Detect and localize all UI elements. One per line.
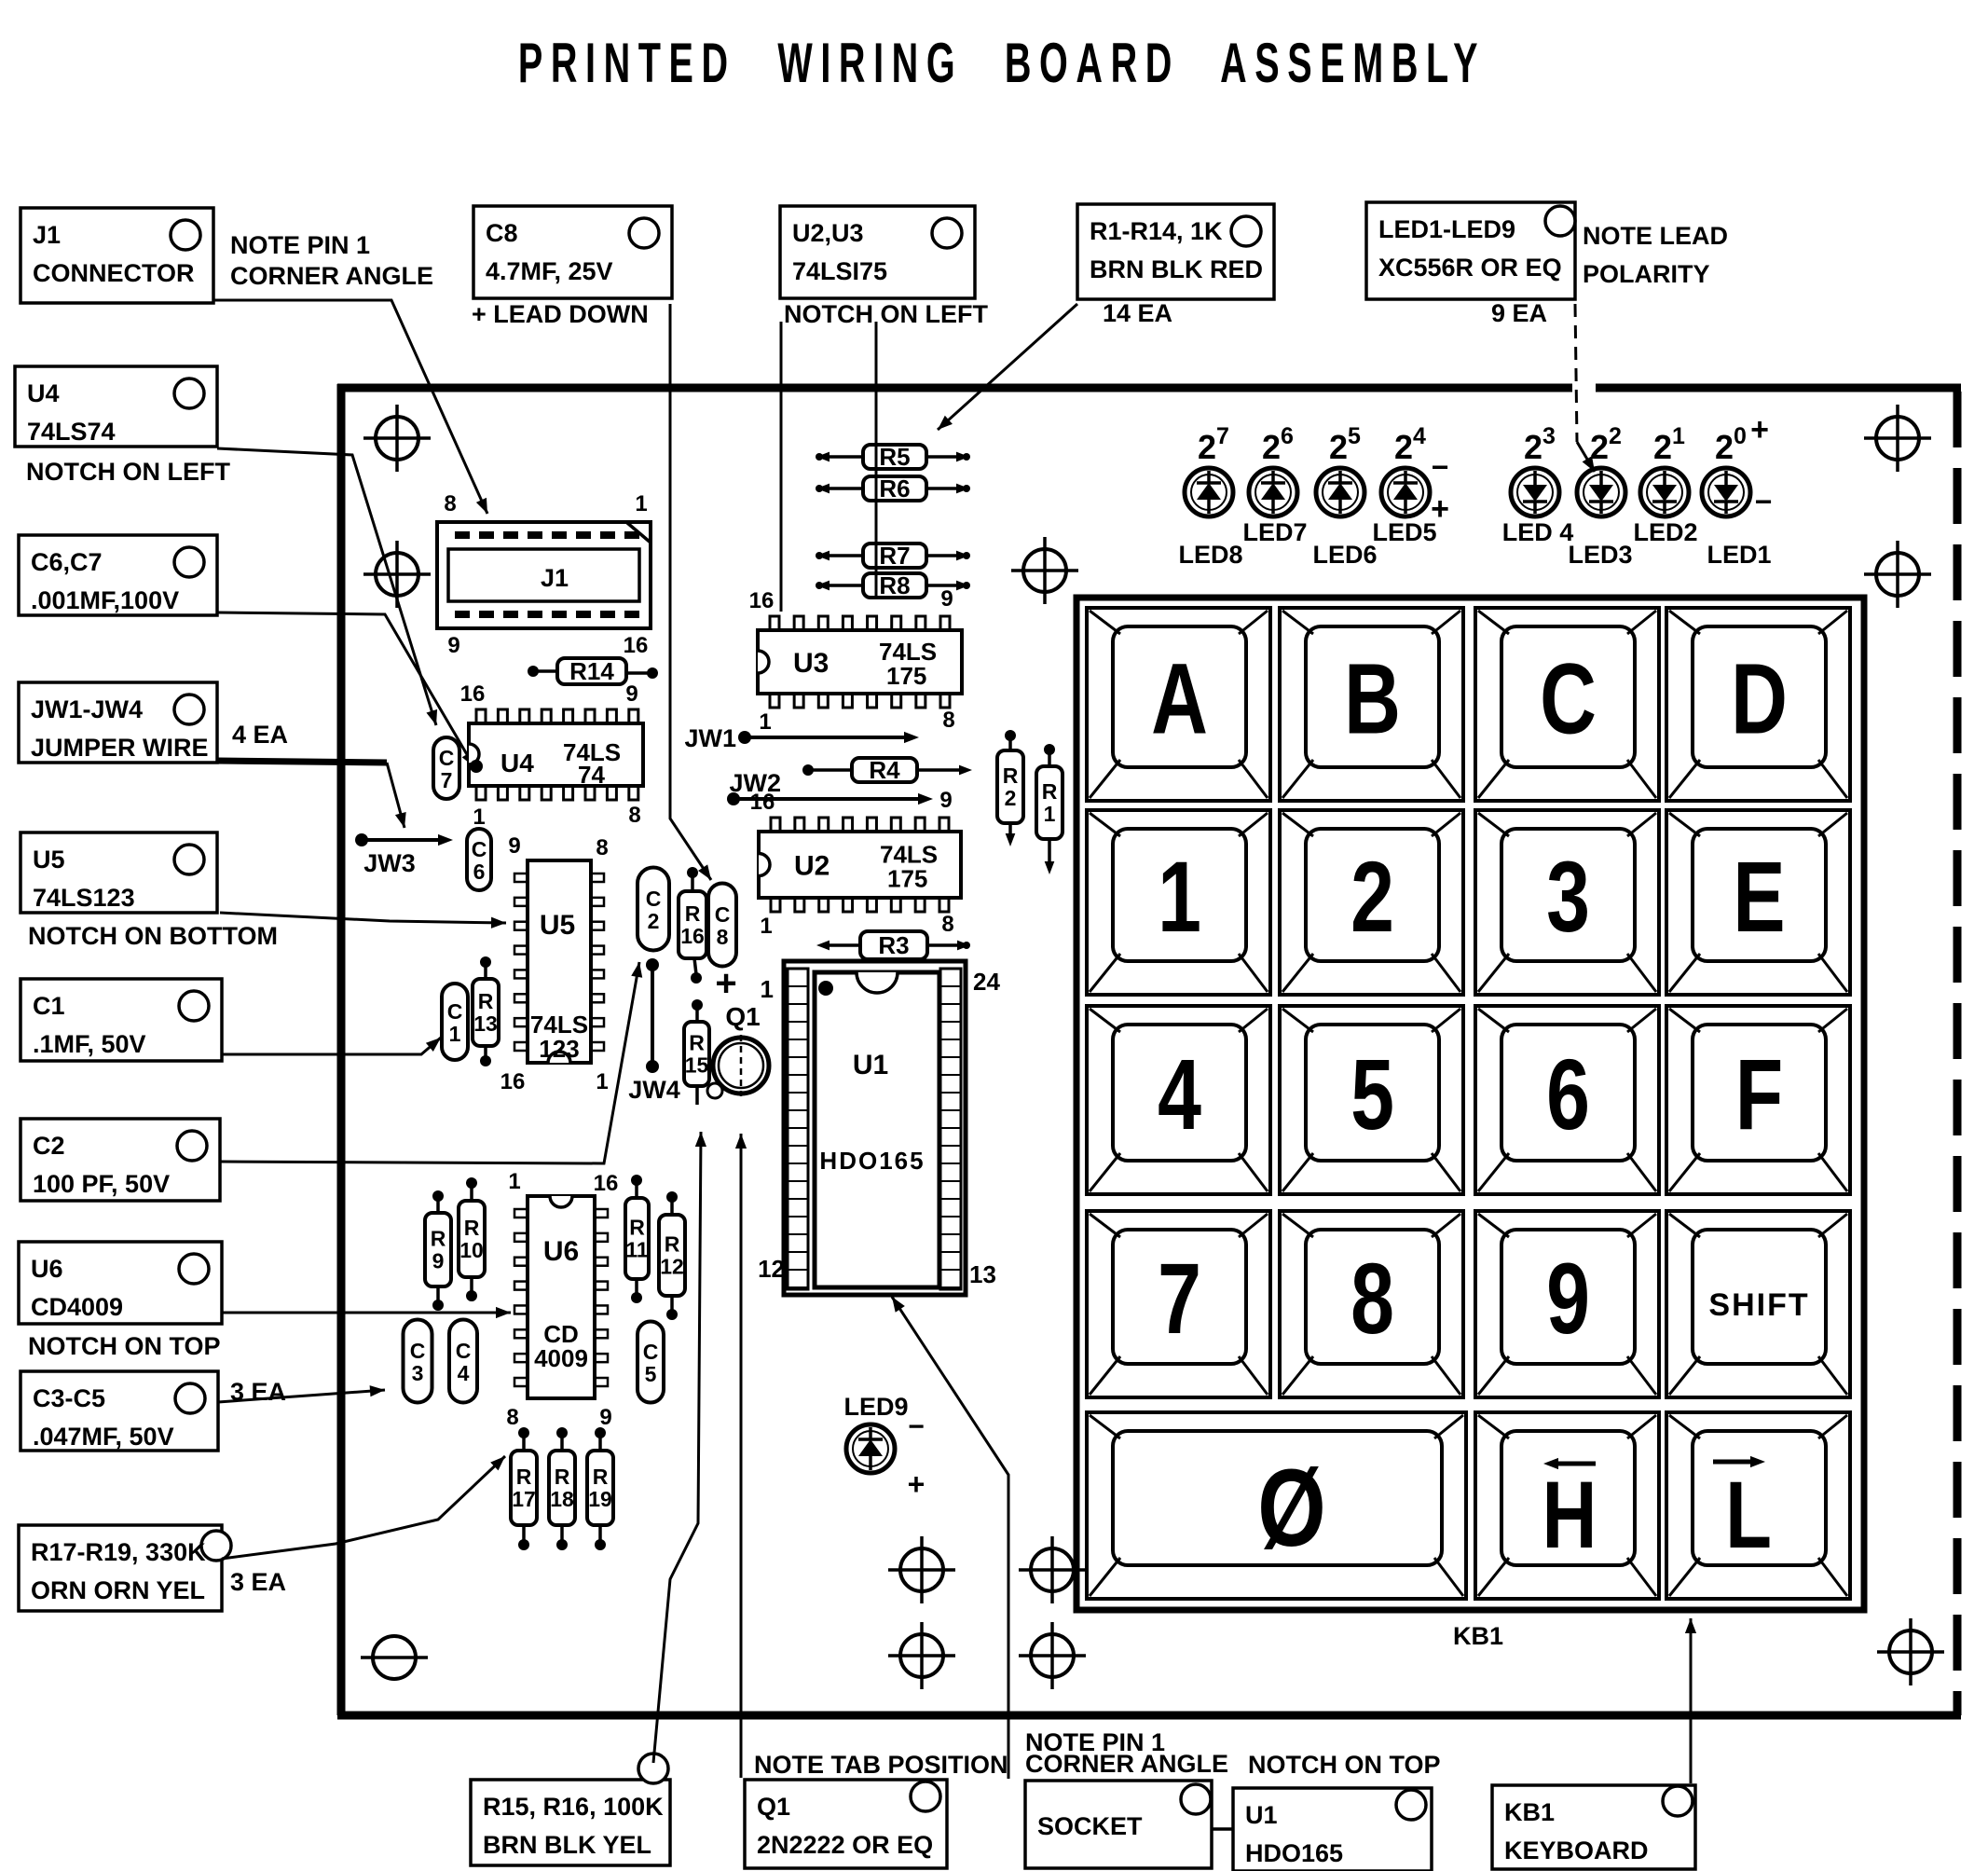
svg-text:1: 1 <box>596 1069 608 1094</box>
svg-text:11: 11 <box>625 1238 649 1262</box>
svg-text:9: 9 <box>599 1405 611 1430</box>
svg-text:16: 16 <box>460 681 486 707</box>
svg-text:1: 1 <box>760 914 772 939</box>
svg-text:.001MF,100V: .001MF,100V <box>31 586 179 614</box>
svg-text:R: R <box>1003 764 1019 788</box>
svg-text:C: C <box>472 837 487 861</box>
svg-text:R14: R14 <box>569 657 614 685</box>
svg-text:19: 19 <box>588 1487 612 1511</box>
svg-text:74LS74: 74LS74 <box>27 418 116 446</box>
svg-text:1: 1 <box>635 491 647 516</box>
svg-text:R8: R8 <box>879 571 910 599</box>
svg-text:17: 17 <box>512 1487 536 1511</box>
svg-text:ORN ORN YEL: ORN ORN YEL <box>31 1576 205 1604</box>
svg-text:74: 74 <box>578 761 605 789</box>
svg-text:16: 16 <box>594 1171 619 1196</box>
svg-text:3: 3 <box>412 1361 424 1385</box>
svg-text:R: R <box>1042 779 1058 804</box>
svg-text:POLARITY: POLARITY <box>1583 260 1710 288</box>
svg-text:16: 16 <box>749 588 775 613</box>
svg-text:R4: R4 <box>869 756 900 784</box>
svg-text:BRN BLK RED: BRN BLK RED <box>1090 255 1263 283</box>
svg-text:4 EA: 4 EA <box>232 721 288 749</box>
svg-text:−: − <box>1755 485 1773 518</box>
svg-text:R15, R16, 100K: R15, R16, 100K <box>483 1793 664 1821</box>
svg-text:.1MF, 50V: .1MF, 50V <box>33 1030 146 1058</box>
svg-text:175: 175 <box>886 662 926 690</box>
svg-text:R5: R5 <box>879 443 910 471</box>
svg-text:U4: U4 <box>27 379 60 407</box>
svg-text:NOTE PIN 1: NOTE PIN 1 <box>230 231 370 259</box>
svg-text:L: L <box>1725 1461 1772 1568</box>
svg-text:C: C <box>1540 641 1597 755</box>
svg-text:+ LEAD DOWN: + LEAD DOWN <box>472 300 649 328</box>
svg-text:3: 3 <box>1546 840 1590 954</box>
svg-text:14 EA: 14 EA <box>1103 299 1172 327</box>
svg-text:7: 7 <box>441 768 453 792</box>
svg-text:8: 8 <box>717 925 729 949</box>
svg-text:12: 12 <box>660 1255 684 1279</box>
svg-text:J1: J1 <box>33 221 61 249</box>
svg-text:R: R <box>689 1031 705 1055</box>
svg-text:.047MF, 50V: .047MF, 50V <box>33 1423 174 1451</box>
svg-text:KEYBOARD: KEYBOARD <box>1504 1837 1649 1864</box>
svg-text:LED2: LED2 <box>1633 518 1697 546</box>
svg-text:16: 16 <box>680 924 705 948</box>
svg-text:C: C <box>439 746 455 770</box>
svg-text:R: R <box>629 1216 645 1240</box>
svg-text:R: R <box>478 989 494 1013</box>
svg-text:6: 6 <box>1546 1038 1590 1151</box>
svg-text:LED1: LED1 <box>1707 541 1771 569</box>
svg-text:9: 9 <box>432 1249 445 1273</box>
svg-text:1: 1 <box>449 1022 461 1046</box>
svg-text:8: 8 <box>628 803 640 828</box>
svg-text:+: + <box>1750 412 1769 447</box>
svg-text:100 PF, 50V: 100 PF, 50V <box>33 1170 170 1198</box>
svg-text:13: 13 <box>969 1260 996 1288</box>
svg-text:Ø: Ø <box>1257 1446 1325 1570</box>
svg-text:NOTCH ON LEFT: NOTCH ON LEFT <box>784 300 988 328</box>
svg-text:F: F <box>1735 1038 1783 1151</box>
svg-text:LED7: LED7 <box>1242 518 1307 546</box>
svg-text:2N2222 OR EQ: 2N2222 OR EQ <box>757 1831 933 1859</box>
svg-text:123: 123 <box>539 1035 579 1063</box>
svg-text:JW4: JW4 <box>628 1076 680 1104</box>
svg-text:CONNECTOR: CONNECTOR <box>33 259 195 287</box>
svg-text:U5: U5 <box>33 846 65 874</box>
svg-text:LED 4: LED 4 <box>1502 518 1574 546</box>
svg-text:U6: U6 <box>543 1236 579 1267</box>
svg-text:NOTE LEAD: NOTE LEAD <box>1583 222 1728 250</box>
svg-text:18: 18 <box>550 1487 574 1511</box>
svg-text:R1-R14, 1K: R1-R14, 1K <box>1090 217 1223 245</box>
svg-text:1: 1 <box>1044 802 1056 826</box>
svg-text:4.7MF, 25V: 4.7MF, 25V <box>486 257 613 285</box>
svg-text:4009: 4009 <box>534 1344 588 1372</box>
svg-text:2: 2 <box>648 909 660 933</box>
svg-text:2: 2 <box>1350 840 1394 954</box>
svg-text:175: 175 <box>887 865 927 893</box>
svg-text:+: + <box>1431 491 1449 527</box>
svg-text:NOTCH ON TOP: NOTCH ON TOP <box>28 1332 221 1360</box>
svg-text:R3: R3 <box>878 931 909 959</box>
svg-text:R: R <box>516 1465 532 1489</box>
svg-text:R: R <box>555 1465 570 1489</box>
svg-text:NOTCH ON TOP: NOTCH ON TOP <box>1248 1751 1441 1779</box>
svg-text:JUMPER WIRE: JUMPER WIRE <box>31 734 209 762</box>
svg-text:R: R <box>685 901 701 926</box>
svg-text:E: E <box>1733 840 1785 954</box>
svg-text:8: 8 <box>1350 1242 1394 1355</box>
svg-text:4: 4 <box>458 1361 470 1385</box>
svg-text:CORNER ANGLE: CORNER ANGLE <box>230 262 433 290</box>
svg-text:R: R <box>431 1227 446 1251</box>
svg-text:7: 7 <box>1158 1242 1201 1355</box>
svg-text:C: C <box>646 887 662 911</box>
svg-text:U1: U1 <box>853 1050 888 1080</box>
svg-text:C: C <box>643 1340 659 1364</box>
svg-text:R: R <box>665 1232 680 1257</box>
svg-text:A: A <box>1151 641 1208 755</box>
svg-text:9: 9 <box>940 586 953 612</box>
svg-text:LED3: LED3 <box>1568 541 1632 569</box>
svg-text:D: D <box>1731 641 1788 755</box>
svg-text:9: 9 <box>939 788 952 813</box>
svg-text:9: 9 <box>508 833 520 859</box>
svg-text:Q1: Q1 <box>725 1002 760 1031</box>
svg-text:24: 24 <box>973 968 1000 996</box>
svg-text:74LS123: 74LS123 <box>33 884 135 912</box>
svg-text:R17-R19, 330K: R17-R19, 330K <box>31 1538 206 1566</box>
svg-text:+: + <box>908 1467 925 1501</box>
svg-text:R: R <box>464 1216 480 1240</box>
svg-text:JW1-JW4: JW1-JW4 <box>31 695 143 723</box>
svg-text:B: B <box>1344 641 1401 755</box>
svg-text:16: 16 <box>624 633 649 658</box>
svg-text:SOCKET: SOCKET <box>1037 1812 1143 1840</box>
svg-text:+: + <box>715 963 736 1004</box>
svg-text:16: 16 <box>750 790 775 815</box>
svg-text:J1: J1 <box>541 564 569 592</box>
svg-text:U2: U2 <box>794 851 829 882</box>
svg-text:C: C <box>410 1339 426 1363</box>
svg-text:2: 2 <box>1005 786 1017 810</box>
svg-text:JW1: JW1 <box>684 724 736 752</box>
svg-text:C3-C5: C3-C5 <box>33 1384 105 1412</box>
svg-text:74LSI75: 74LSI75 <box>792 257 887 285</box>
svg-text:1: 1 <box>473 805 485 830</box>
svg-text:1: 1 <box>759 709 771 735</box>
svg-text:KB1: KB1 <box>1453 1622 1503 1650</box>
svg-text:16: 16 <box>500 1069 526 1094</box>
svg-text:R7: R7 <box>879 542 910 570</box>
svg-text:9: 9 <box>625 681 638 707</box>
svg-text:R: R <box>593 1465 609 1489</box>
svg-text:C: C <box>456 1339 472 1363</box>
svg-text:LED5: LED5 <box>1372 518 1436 546</box>
svg-text:C6,C7: C6,C7 <box>31 548 103 576</box>
svg-text:PRINTED WIRING BOARD ASSEMBLY: PRINTED WIRING BOARD ASSEMBLY <box>518 32 1486 94</box>
svg-text:8: 8 <box>596 835 608 860</box>
svg-text:5: 5 <box>645 1362 657 1386</box>
svg-text:−: − <box>1432 450 1449 484</box>
svg-text:U6: U6 <box>31 1255 63 1283</box>
svg-text:C1: C1 <box>33 992 65 1020</box>
svg-text:LED8: LED8 <box>1178 541 1242 569</box>
svg-text:JW3: JW3 <box>363 849 416 877</box>
svg-text:C: C <box>715 902 731 927</box>
svg-text:1: 1 <box>761 975 774 1003</box>
svg-text:LED9: LED9 <box>843 1393 908 1421</box>
svg-text:1: 1 <box>1158 840 1201 954</box>
svg-text:U5: U5 <box>540 910 575 941</box>
svg-text:LED6: LED6 <box>1312 541 1377 569</box>
svg-text:Q1: Q1 <box>757 1793 790 1821</box>
svg-text:R6: R6 <box>879 475 910 502</box>
svg-text:CD4009: CD4009 <box>31 1293 123 1321</box>
svg-text:8: 8 <box>942 708 954 733</box>
svg-text:13: 13 <box>473 1011 498 1036</box>
svg-text:15: 15 <box>685 1053 709 1078</box>
svg-text:10: 10 <box>459 1238 484 1262</box>
svg-text:KB1: KB1 <box>1504 1798 1555 1826</box>
svg-text:5: 5 <box>1350 1038 1394 1151</box>
svg-text:H: H <box>1542 1461 1597 1568</box>
svg-text:1: 1 <box>508 1169 520 1194</box>
svg-text:9: 9 <box>1546 1242 1590 1355</box>
svg-text:BRN BLK YEL: BRN BLK YEL <box>483 1831 651 1859</box>
svg-text:U2,U3: U2,U3 <box>792 219 864 247</box>
svg-text:3 EA: 3 EA <box>230 1568 286 1596</box>
svg-text:LED1-LED9: LED1-LED9 <box>1378 215 1515 243</box>
svg-text:9: 9 <box>447 633 459 658</box>
svg-text:8: 8 <box>506 1405 518 1430</box>
svg-text:CORNER ANGLE: CORNER ANGLE <box>1025 1750 1228 1778</box>
svg-text:C2: C2 <box>33 1132 65 1160</box>
svg-text:12: 12 <box>758 1255 785 1283</box>
svg-text:6: 6 <box>473 860 486 884</box>
svg-text:NOTE TAB POSITION: NOTE TAB POSITION <box>754 1751 1008 1779</box>
svg-text:NOTCH ON BOTTOM: NOTCH ON BOTTOM <box>28 922 278 950</box>
svg-text:9 EA: 9 EA <box>1491 299 1547 327</box>
svg-text:XC556R OR EQ: XC556R OR EQ <box>1378 254 1562 282</box>
svg-text:8: 8 <box>444 491 456 516</box>
svg-text:4: 4 <box>1158 1038 1201 1151</box>
svg-text:−: − <box>908 1411 925 1442</box>
svg-text:NOTCH ON LEFT: NOTCH ON LEFT <box>26 458 230 486</box>
svg-text:U4: U4 <box>500 749 534 777</box>
svg-text:C: C <box>447 999 463 1024</box>
svg-text:U1: U1 <box>1245 1801 1278 1829</box>
svg-text:SHIFT: SHIFT <box>1708 1287 1809 1323</box>
svg-text:U3: U3 <box>793 648 829 679</box>
svg-text:8: 8 <box>941 912 953 937</box>
svg-text:HDO165: HDO165 <box>1245 1839 1343 1867</box>
svg-text:C8: C8 <box>486 219 518 247</box>
svg-text:HDO165: HDO165 <box>819 1147 925 1175</box>
